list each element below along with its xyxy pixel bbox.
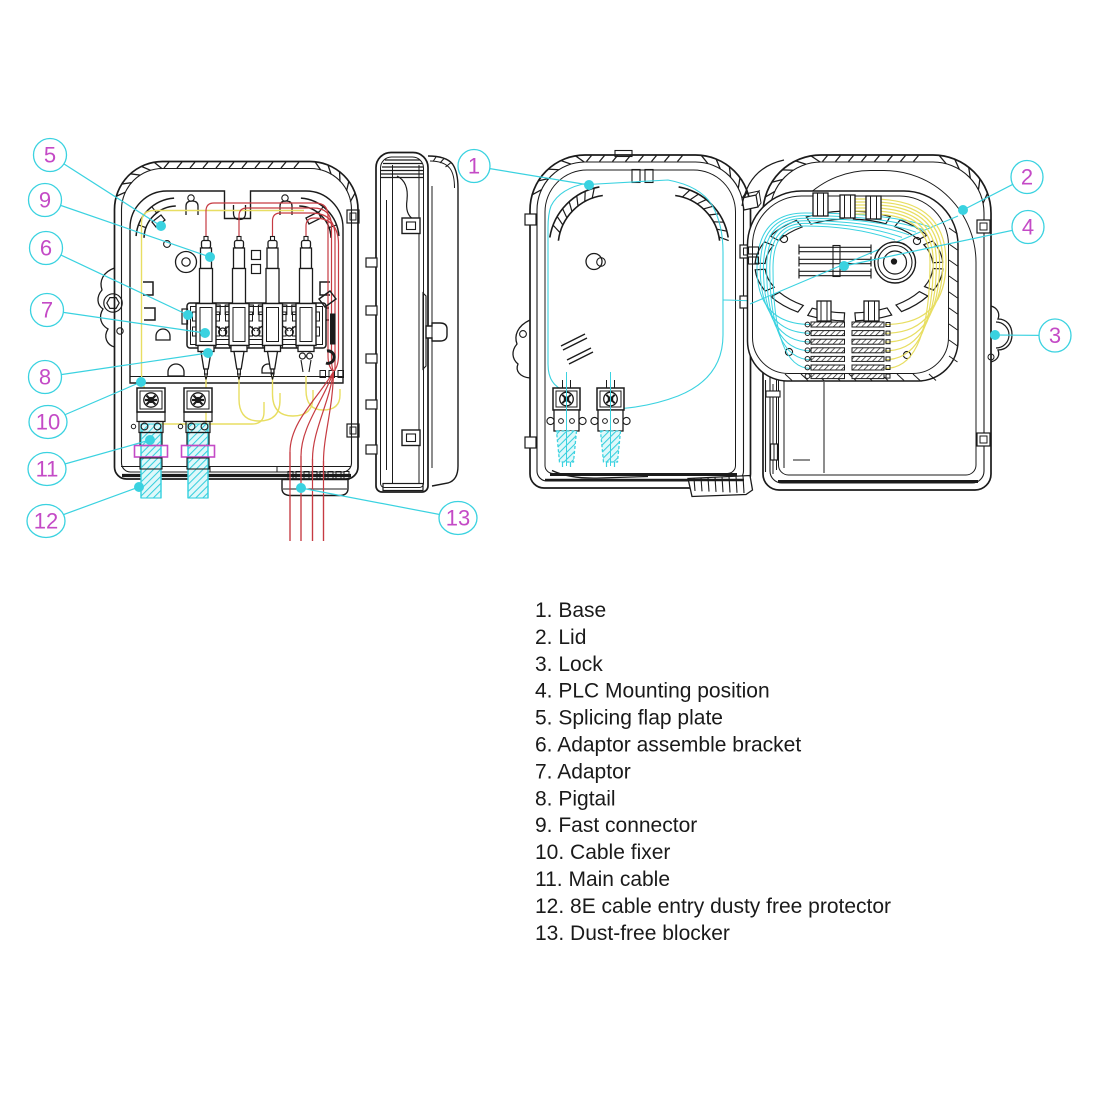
svg-text:13. Dust-free blocker: 13. Dust-free blocker — [535, 922, 730, 945]
svg-text:4. PLC Mounting position: 4. PLC Mounting position — [535, 680, 770, 703]
svg-text:3. Lock: 3. Lock — [535, 653, 603, 676]
svg-text:10. Cable fixer: 10. Cable fixer — [535, 841, 670, 864]
svg-text:9. Fast connector: 9. Fast connector — [535, 814, 697, 837]
svg-text:8: 8 — [39, 365, 51, 390]
svg-text:7. Adaptor: 7. Adaptor — [535, 760, 631, 783]
svg-text:11: 11 — [36, 457, 59, 482]
svg-text:12. 8E cable entry dusty free: 12. 8E cable entry dusty free protector — [535, 895, 891, 918]
svg-text:6: 6 — [40, 236, 52, 261]
svg-text:13: 13 — [446, 506, 470, 531]
svg-text:9: 9 — [39, 188, 51, 213]
svg-text:2: 2 — [1021, 165, 1033, 190]
svg-text:1: 1 — [468, 154, 480, 179]
svg-text:10: 10 — [36, 410, 60, 435]
svg-text:1. Base: 1. Base — [535, 599, 606, 622]
svg-text:3: 3 — [1049, 323, 1061, 348]
svg-text:6. Adaptor assemble bracket: 6. Adaptor assemble bracket — [535, 734, 801, 757]
svg-text:2. Lid: 2. Lid — [535, 626, 586, 649]
svg-text:8. Pigtail: 8. Pigtail — [535, 787, 616, 810]
svg-text:7: 7 — [41, 298, 53, 323]
svg-text:12: 12 — [34, 509, 58, 534]
svg-text:5. Splicing flap plate: 5. Splicing flap plate — [535, 707, 723, 730]
svg-text:5: 5 — [44, 143, 56, 168]
svg-text:11. Main cable: 11. Main cable — [535, 868, 670, 891]
svg-text:4: 4 — [1022, 215, 1034, 240]
